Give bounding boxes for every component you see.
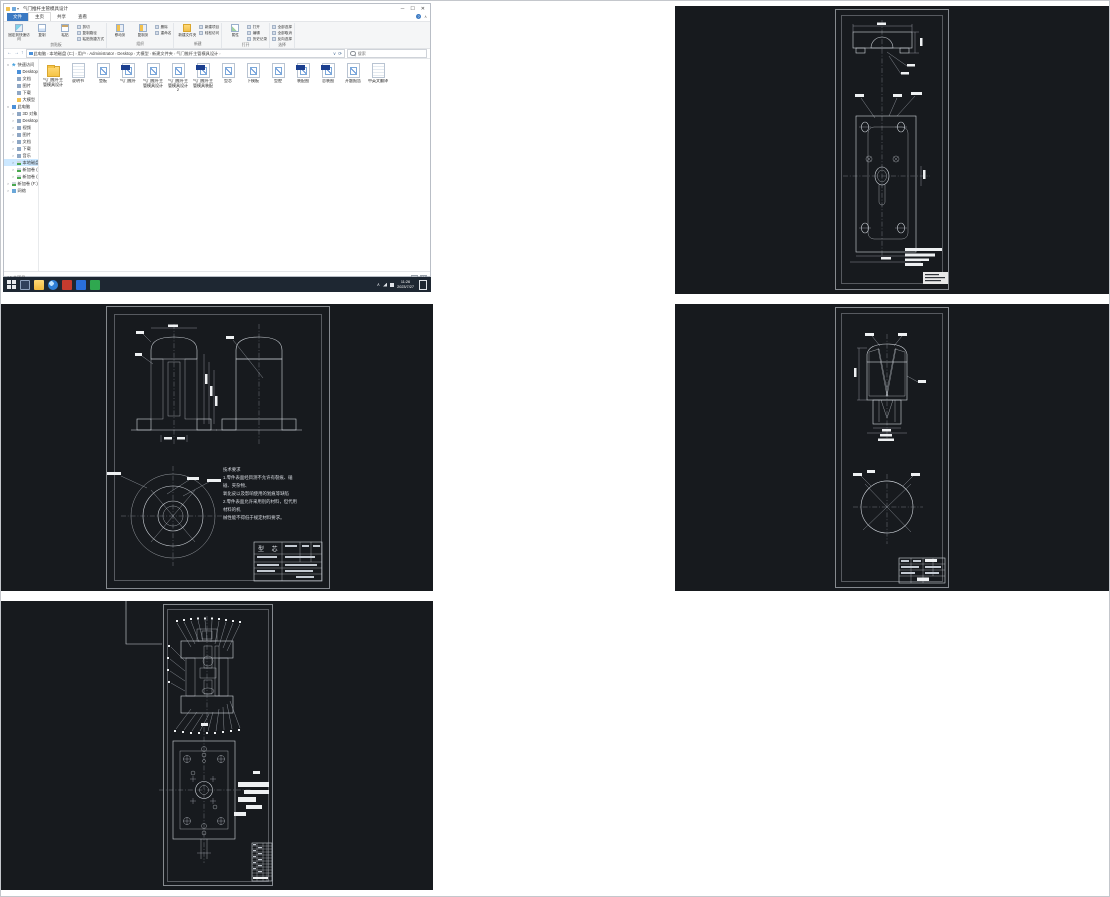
collapse-ribbon-icon[interactable]: ∧	[424, 14, 427, 19]
start-icon[interactable]	[7, 280, 16, 289]
sidebar-item-label: 本地磁盘 (C:)	[23, 160, 39, 166]
file-name: 型腔	[274, 79, 282, 84]
breadcrumb-segment[interactable]: Administrator	[89, 51, 114, 56]
file-item[interactable]: 气门推杆主管模具设计	[143, 63, 163, 88]
ribbon-button-新建项目[interactable]: 新建项目	[199, 25, 219, 30]
expander-icon[interactable]: >	[6, 182, 10, 186]
pc-icon	[12, 105, 17, 109]
breadcrumb-separator-icon: ›	[75, 51, 76, 56]
ribbon-button-label: 新建项目	[205, 25, 219, 30]
drive-icon	[17, 161, 22, 165]
cad-plate-svg	[675, 6, 1109, 294]
ribbon-button-label: 重命名	[161, 31, 172, 36]
expander-icon[interactable]: ∨	[6, 63, 10, 67]
notification-center-icon[interactable]	[419, 280, 427, 290]
dwg-file-icon	[147, 63, 160, 78]
file-name: 垫板	[99, 79, 107, 84]
expander-icon[interactable]: >	[11, 126, 15, 130]
tab-主页[interactable]: 主页	[28, 12, 51, 21]
sidebar-item-label: 此电脑	[18, 104, 31, 110]
parts-list-block	[252, 843, 272, 881]
prop-icon	[231, 24, 239, 32]
file-item[interactable]: 垫板	[93, 63, 113, 84]
file-list: 气门推杆主管模具设计说明书垫板气门推杆气门推杆主管模具设计气门推杆主管模具设计2…	[39, 59, 430, 271]
breadcrumb-separator-icon: ›	[174, 51, 175, 56]
computer-icon	[29, 52, 33, 56]
file-item[interactable]: 中英文翻译	[368, 63, 388, 84]
ribbon-group-组织: 移动到复制到删除重命名组织	[107, 23, 174, 48]
search-box[interactable]	[347, 49, 427, 58]
plain-icon	[17, 154, 22, 158]
plain-icon	[17, 84, 22, 88]
breadcrumb-segment[interactable]: Desktop	[117, 51, 132, 56]
title-bar: ▾ 气门推杆主管模具设计 ─ ☐ ✕	[4, 4, 430, 13]
dwg-file-icon	[97, 63, 110, 78]
cad-cavity-svg	[675, 304, 1109, 591]
move-icon	[139, 24, 147, 32]
sidebar-item-下载[interactable]: >下载	[4, 145, 38, 152]
sidebar-item-视频[interactable]: >视频	[4, 124, 38, 131]
expander-icon[interactable]: >	[11, 133, 15, 137]
sidebar-item-label: 新加卷 (F:)	[18, 181, 38, 187]
sidebar-item-label: 大模型	[23, 97, 36, 103]
expander-icon[interactable]: >	[11, 119, 15, 123]
ribbon-button-label: 删除	[161, 25, 168, 30]
sidebar-item-快速访问[interactable]: ∨快速访问	[4, 61, 38, 68]
ribbon-button-label: 复制到	[138, 33, 149, 37]
doc-file-icon	[72, 63, 85, 78]
drive-icon	[17, 175, 22, 179]
file-name: 装配图	[297, 79, 309, 84]
sidebar-item-Desktop[interactable]: >Desktop	[4, 117, 38, 124]
ribbon-group-新建: 新建文件夹新建项目轻松访问新建	[174, 23, 222, 48]
ribbon-button-label: 移动到	[115, 33, 126, 37]
file-item[interactable]: 型腔	[268, 63, 288, 84]
ribbon-tabs: 文件主页共享查看 ? ∧	[4, 13, 430, 22]
breadcrumb-separator-icon: ›	[150, 51, 151, 56]
ribbon-group-选择: 全部选择全部取消反向选择选择	[270, 23, 295, 48]
sidebar-item-新加卷 (D:)[interactable]: >新加卷 (D:)	[4, 166, 38, 173]
dwgb-file-icon	[297, 63, 310, 78]
window-title: 气门推杆主管模具设计	[23, 6, 401, 12]
ribbon-group-label: 选择	[272, 42, 292, 49]
file-name: 说明书	[72, 79, 84, 84]
sidebar-item-3D 对象[interactable]: >3D 对象	[4, 110, 38, 117]
dwg-badge-icon	[296, 65, 305, 70]
expander-icon[interactable]: ∨	[6, 105, 10, 109]
expander-icon[interactable]: >	[11, 161, 15, 165]
file-name: 总装图	[322, 79, 334, 84]
small-icon	[272, 37, 276, 41]
ribbon-button-编辑[interactable]: 编辑	[247, 31, 267, 36]
sidebar-item-label: 图片	[23, 132, 31, 138]
plain-icon	[17, 133, 22, 137]
sidebar-item-大模型[interactable]: 大模型	[4, 96, 38, 103]
star-icon	[12, 63, 17, 67]
ribbon-group-label: 组织	[109, 41, 171, 48]
sidebar-item-图片[interactable]: >图片	[4, 131, 38, 138]
taskbar: ∧ 11:26 2023/7/27	[3, 277, 431, 292]
file-item[interactable]: 说明书	[68, 63, 88, 84]
small-icon	[199, 25, 203, 29]
plain-icon	[17, 77, 22, 81]
small-icon	[272, 25, 276, 29]
sidebar-item-此电脑[interactable]: ∨此电脑	[4, 103, 38, 110]
file-item[interactable]: 气门推杆主管模具装配	[193, 63, 213, 88]
ribbon-button-打开[interactable]: 打开	[247, 25, 267, 30]
tab-文件[interactable]: 文件	[7, 13, 28, 21]
sidebar-item-新加卷 (F:)[interactable]: >新加卷 (F:)	[4, 180, 38, 187]
file-item[interactable]: 气门推杆主管模具设计2	[168, 63, 188, 93]
ribbon-button-label: 打开	[253, 25, 260, 30]
sidebar-item-label: 图片	[23, 83, 31, 89]
file-name: 开题报告	[345, 79, 361, 84]
dwg-file-icon	[172, 63, 185, 78]
small-icon	[77, 31, 81, 35]
sidebar-item-文档[interactable]: 文档	[4, 75, 38, 82]
ribbon-button-删除[interactable]: 删除	[155, 25, 171, 30]
dwgb-file-icon	[197, 63, 210, 78]
breadcrumb-segment[interactable]: 用户	[78, 51, 86, 57]
task-view-icon[interactable]	[20, 280, 30, 290]
small-icon	[247, 25, 251, 29]
file-name: 气门推杆主管模具设计	[43, 78, 63, 87]
ribbon-button-轻松访问[interactable]: 轻松访问	[199, 31, 219, 36]
folder-icon	[6, 7, 10, 11]
file-explorer-window: ▾ 气门推杆主管模具设计 ─ ☐ ✕ 文件主页共享查看 ? ∧ 固定到快速访问复…	[3, 3, 431, 277]
volume-icon[interactable]	[390, 283, 394, 287]
sidebar-item-label: 音乐	[23, 153, 31, 159]
blue-app-icon[interactable]	[76, 280, 86, 290]
small-icon	[77, 37, 81, 41]
newf-icon	[183, 24, 191, 32]
expander-icon[interactable]: >	[11, 154, 15, 158]
part-name: 型 芯	[258, 544, 281, 553]
small-icon	[247, 37, 251, 41]
chevron-down-icon[interactable]: ∨	[333, 51, 336, 57]
ribbon-group-label: 新建	[176, 41, 219, 48]
plain-icon	[17, 112, 22, 116]
ribbon-button-剪切[interactable]: 剪切	[77, 25, 104, 30]
file-item[interactable]: 气门推杆	[118, 63, 138, 84]
plain-icon	[17, 126, 22, 130]
ribbon-button-复制到[interactable]: 复制到	[132, 23, 154, 37]
breadcrumb-segment[interactable]: 本地磁盘 (C:)	[49, 51, 74, 57]
sidebar-item-音乐[interactable]: >音乐	[4, 152, 38, 159]
expander-icon[interactable]: >	[11, 175, 15, 179]
breadcrumb-separator-icon: ›	[115, 51, 116, 56]
ribbon-button-label: 全部取消	[278, 31, 292, 36]
tech-req-line: 械性能不得低于规定材料要求。	[223, 514, 301, 522]
title-block-stamp	[923, 272, 948, 284]
plain-icon	[17, 91, 22, 95]
maximize-button[interactable]: ☐	[410, 6, 414, 12]
sidebar-item-label: 快速访问	[18, 62, 35, 68]
qat-icon	[12, 7, 16, 11]
ribbon-button-复制路径[interactable]: 复制路径	[77, 31, 104, 36]
drive-icon	[17, 168, 22, 172]
move-icon	[116, 24, 124, 32]
ribbon-button-label: 属性	[232, 33, 239, 37]
file-item[interactable]: 型芯	[218, 63, 238, 84]
cad-drawing-plate	[675, 6, 1109, 294]
help-icon[interactable]: ?	[416, 14, 421, 19]
breadcrumb-separator-icon: ›	[47, 51, 48, 56]
breadcrumb-segment[interactable]: 大模型	[136, 51, 149, 57]
file-item[interactable]: 总装图	[318, 63, 338, 84]
tab-共享[interactable]: 共享	[51, 13, 72, 21]
breadcrumb[interactable]: 此电脑›本地磁盘 (C:)›用户›Administrator›Desktop›大…	[26, 49, 346, 58]
red-app-icon[interactable]	[62, 280, 72, 290]
taskbar-clock[interactable]: 11:26 2023/7/27	[397, 280, 414, 289]
technical-requirements: 技术要求 1.零件表面经目测不允许有裂痕、磕碰、夹杂物、氧化皮以及影响使用的划痕…	[223, 466, 301, 522]
file-name: 中英文翻译	[368, 79, 388, 84]
file-explorer-icon[interactable]	[34, 280, 44, 290]
ribbon-button-label: 粘贴	[61, 33, 68, 37]
sidebar-item-文档[interactable]: >文档	[4, 138, 38, 145]
expander-icon[interactable]: >	[11, 168, 15, 172]
chevron-up-icon[interactable]: ∧	[377, 282, 380, 288]
cad-drawing-assembly	[1, 601, 433, 890]
search-input[interactable]	[358, 51, 425, 56]
tech-req-line: 氧化皮以及影响使用的划痕等缺陷	[223, 490, 301, 498]
ribbon-button-移动到[interactable]: 移动到	[109, 23, 131, 37]
net-icon	[12, 189, 17, 193]
breadcrumb-separator-icon: ›	[219, 51, 220, 56]
pc-icon	[17, 70, 22, 74]
file-name: 气门推杆主管模具装配	[193, 79, 213, 88]
ribbon-button-label: 轻松访问	[205, 31, 219, 36]
drive-icon	[12, 182, 17, 186]
dwgb-file-icon	[122, 63, 135, 78]
plain-icon	[17, 140, 22, 144]
file-item[interactable]: 装配图	[293, 63, 313, 84]
ribbon-button-固定到快速访问[interactable]: 固定到快速访问	[8, 23, 30, 41]
forward-button[interactable]: →	[14, 51, 19, 56]
ribbon-button-label: 复制	[38, 33, 45, 37]
back-button[interactable]: ←	[7, 51, 12, 56]
close-button[interactable]: ✕	[421, 6, 425, 12]
folder-icon	[17, 98, 22, 102]
dwg-badge-icon	[321, 65, 330, 70]
small-icon	[155, 25, 159, 29]
sidebar-item-label: 文档	[23, 76, 31, 82]
ribbon-button-label: 编辑	[253, 31, 260, 36]
ribbon-button-属性[interactable]: 属性	[224, 23, 246, 37]
dwg-file-icon	[272, 63, 285, 78]
ribbon-button-新建文件夹[interactable]: 新建文件夹	[176, 23, 198, 37]
tech-req-title: 技术要求	[223, 466, 301, 474]
sidebar-item-label: 3D 对象	[23, 111, 38, 117]
sidebar-item-label: 文档	[23, 139, 31, 145]
dwg-badge-icon	[196, 65, 205, 70]
navigation-pane: ∨快速访问Desktop文档图片下载大模型∨此电脑>3D 对象>Desktop>…	[4, 59, 39, 271]
expander-icon[interactable]: >	[6, 189, 10, 193]
sidebar-item-新加卷 (E:)[interactable]: >新加卷 (E:)	[4, 173, 38, 180]
ribbon-button-label: 复制路径	[83, 31, 97, 36]
ribbon-button-粘贴[interactable]: 粘贴	[54, 23, 76, 37]
file-name: 气门推杆主管模具设计2	[168, 79, 188, 93]
small-icon	[247, 31, 251, 35]
dwg-file-icon	[247, 63, 260, 78]
clock-date: 2023/7/27	[397, 285, 414, 289]
sidebar-item-下载[interactable]: 下载	[4, 89, 38, 96]
sidebar-item-label: 下载	[23, 146, 31, 152]
dwg-file-icon	[222, 63, 235, 78]
sidebar-item-Desktop[interactable]: Desktop	[4, 68, 38, 75]
folder-file-icon	[47, 66, 60, 77]
expander-icon[interactable]: >	[11, 112, 15, 116]
small-icon	[77, 25, 81, 29]
cad-drawing-cavity-part	[675, 304, 1109, 591]
up-button[interactable]: ↑	[21, 51, 24, 56]
address-bar: ← → ↑ 此电脑›本地磁盘 (C:)›用户›Administrator›Des…	[4, 49, 430, 59]
green-app-icon[interactable]	[90, 280, 100, 290]
ribbon-button-label: 剪切	[83, 25, 90, 30]
plain-icon	[17, 119, 22, 123]
system-tray: ∧ 11:26 2023/7/27	[377, 280, 429, 290]
tech-req-line: 1.零件表面经目测不允许有裂痕、磕碰、夹杂物、	[223, 474, 301, 490]
sidebar-item-label: 视频	[23, 125, 31, 131]
expander-icon[interactable]: >	[11, 147, 15, 151]
paste-icon	[61, 24, 69, 32]
quick-access-toolbar[interactable]: ▾	[6, 6, 19, 11]
file-name: 气门推杆	[120, 79, 136, 84]
sidebar-item-label: 网络	[18, 188, 26, 194]
sidebar-item-label: 新加卷 (D:)	[23, 167, 39, 173]
ribbon-button-复制[interactable]: 复制	[31, 23, 53, 37]
ribbon-group-剪贴板: 固定到快速访问复制粘贴剪切复制路径粘贴快捷方式剪贴板	[6, 23, 107, 48]
refresh-icon[interactable]: ⟳	[338, 51, 342, 57]
file-item[interactable]: 开题报告	[343, 63, 363, 84]
dwgb-file-icon	[322, 63, 335, 78]
ribbon-button-label: 全部选择	[278, 25, 292, 30]
screenshot-canvas: ▾ 气门推杆主管模具设计 ─ ☐ ✕ 文件主页共享查看 ? ∧ 固定到快速访问复…	[0, 0, 1110, 897]
ribbon-group-label: 剪贴板	[8, 42, 104, 49]
browser-icon[interactable]	[48, 280, 58, 290]
breadcrumb-segment[interactable]: 此电脑	[34, 51, 47, 57]
cad-core-svg	[1, 304, 433, 591]
chevron-down-icon[interactable]: ▾	[17, 6, 19, 11]
plain-icon	[17, 147, 22, 151]
small-icon	[199, 31, 203, 35]
breadcrumb-separator-icon: ›	[87, 51, 88, 56]
breadcrumb-segment[interactable]: 新建文件夹	[152, 51, 173, 57]
ribbon-button-全部取消[interactable]: 全部取消	[272, 31, 292, 36]
breadcrumb-separator-icon: ›	[134, 51, 135, 56]
file-name: 气门推杆主管模具设计	[143, 79, 163, 88]
sidebar-item-label: 新加卷 (E:)	[23, 174, 39, 180]
sidebar-item-label: 下载	[23, 90, 31, 96]
pin-icon	[15, 24, 23, 32]
tech-req-line: 2.零件表面允许采用别的材料，但代用材料的机	[223, 498, 301, 514]
file-item[interactable]: 下模板	[243, 63, 263, 84]
sidebar-item-本地磁盘 (C:)[interactable]: >本地磁盘 (C:)	[4, 159, 38, 166]
title-block	[899, 558, 945, 583]
small-icon	[272, 31, 276, 35]
ribbon-group-label: 打开	[224, 42, 267, 49]
ribbon: 固定到快速访问复制粘贴剪切复制路径粘贴快捷方式剪贴板移动到复制到删除重命名组织新…	[4, 22, 430, 49]
file-item[interactable]: 气门推杆主管模具设计	[43, 63, 63, 87]
expander-icon[interactable]: >	[11, 140, 15, 144]
small-icon	[155, 31, 159, 35]
cad-drawing-core-part: 技术要求 1.零件表面经目测不允许有裂痕、磕碰、夹杂物、氧化皮以及影响使用的划痕…	[1, 304, 433, 591]
dwg-badge-icon	[121, 65, 130, 70]
tab-查看[interactable]: 查看	[72, 13, 93, 21]
minimize-button[interactable]: ─	[401, 6, 405, 12]
ribbon-button-label: 固定到快速访问	[8, 33, 30, 41]
sidebar-item-label: Desktop	[23, 69, 38, 74]
sidebar-item-图片[interactable]: 图片	[4, 82, 38, 89]
ribbon-button-label: 新建文件夹	[178, 33, 196, 37]
sidebar-item-网络[interactable]: >网络	[4, 187, 38, 194]
doc-file-icon	[372, 63, 385, 78]
network-icon[interactable]	[383, 283, 387, 287]
dwg-file-icon	[347, 63, 360, 78]
file-name: 型芯	[224, 79, 232, 84]
cad-assembly-svg	[1, 601, 433, 890]
copy-icon	[38, 24, 46, 32]
ribbon-button-全部选择[interactable]: 全部选择	[272, 25, 292, 30]
ribbon-group-打开: 属性打开编辑历史记录打开	[222, 23, 270, 48]
file-name: 下模板	[247, 79, 259, 84]
search-icon	[350, 51, 356, 57]
sidebar-item-label: Desktop	[23, 118, 38, 123]
breadcrumb-segment[interactable]: 气门推杆主管模具设计	[176, 51, 218, 57]
ribbon-button-重命名[interactable]: 重命名	[155, 31, 171, 36]
